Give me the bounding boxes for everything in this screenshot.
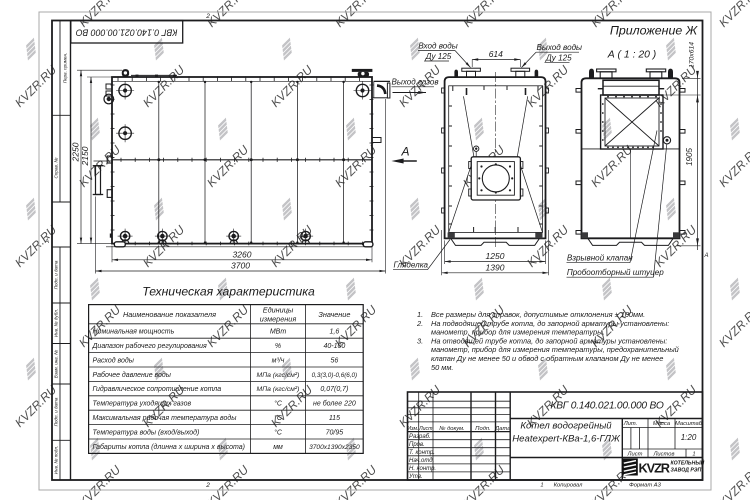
svg-text:%: % <box>275 343 281 350</box>
svg-text:3700: 3700 <box>231 261 250 271</box>
svg-text:Температура уходящих газов: Температура уходящих газов <box>93 400 192 408</box>
svg-text:Лист: Лист <box>418 426 433 432</box>
svg-text:Единицы: Единицы <box>263 306 294 315</box>
svg-text:2250: 2250 <box>71 142 81 162</box>
svg-text:Температура воды (вход/выход): Температура воды (вход/выход) <box>93 428 200 436</box>
svg-text:2.: 2. <box>416 319 423 328</box>
svg-text:На подводящей трубе котла, до: На подводящей трубе котла, до запорной а… <box>431 319 669 328</box>
svg-text:не более 220: не более 220 <box>313 400 356 408</box>
svg-text:Взрывной клапан: Взрывной клапан <box>567 254 633 263</box>
svg-text:Диапазон рабочего регулировани: Диапазон рабочего регулирования <box>92 342 208 350</box>
svg-text:Выход воды: Выход воды <box>537 43 583 52</box>
svg-text:1:20: 1:20 <box>681 433 697 442</box>
svg-text:Номинальная мощность: Номинальная мощность <box>93 329 175 336</box>
svg-text:Справ. №: Справ. № <box>54 158 59 179</box>
svg-text:Значение: Значение <box>318 310 350 319</box>
svg-text:Наименование показателя: Наименование показателя <box>123 310 216 319</box>
svg-text:Техническая характеристика: Техническая характеристика <box>142 285 315 299</box>
svg-text:МПа (кгс/см²): МПа (кгс/см²) <box>257 386 300 393</box>
svg-text:2150: 2150 <box>80 146 90 166</box>
svg-text:1: 1 <box>692 451 695 457</box>
svg-text:Выход газов: Выход газов <box>392 78 439 87</box>
svg-text:Ду 125: Ду 125 <box>545 54 572 63</box>
svg-text:На отводящей трубе котла, до з: На отводящей трубе котла, до запорной ар… <box>431 336 667 345</box>
svg-text:манометр, прибор для измерения: манометр, прибор для измерения температу… <box>431 328 605 337</box>
svg-text:Подп. и дата: Подп. и дата <box>54 260 59 289</box>
svg-text:Нач.отд.: Нач.отд. <box>409 458 434 464</box>
svg-text:70/95: 70/95 <box>326 429 344 436</box>
svg-text:115: 115 <box>329 415 340 422</box>
svg-text:Пробоотборный штуцер: Пробоотборный штуцер <box>567 268 664 277</box>
svg-text:Инв. № подл.: Инв. № подл. <box>54 446 59 475</box>
svg-text:1,6: 1,6 <box>330 329 340 336</box>
svg-text:Разраб.: Разраб. <box>409 434 431 440</box>
svg-text:3260: 3260 <box>233 249 252 259</box>
svg-text:1.: 1. <box>417 310 423 319</box>
svg-text:Пров.: Пров. <box>409 442 425 448</box>
svg-text:МВт: МВт <box>270 329 287 336</box>
svg-text:0,07(0,7): 0,07(0,7) <box>320 386 348 393</box>
svg-text:Габариты котла (длинна х ширин: Габариты котла (длинна х ширина х высота… <box>93 443 246 451</box>
svg-text:Подп.: Подп. <box>475 426 490 432</box>
svg-text:Приложение Ж: Приложение Ж <box>610 24 698 38</box>
svg-text:Формат А3: Формат А3 <box>629 483 661 489</box>
svg-text:Изм.: Изм. <box>407 426 418 432</box>
svg-text:Рабочее давление воды: Рабочее давление воды <box>93 371 172 379</box>
svg-text:2: 2 <box>205 482 210 489</box>
svg-text:А: А <box>401 145 410 159</box>
svg-text:1250: 1250 <box>486 251 505 261</box>
svg-text:Гидравлическое сопротивление к: Гидравлическое сопротивление котла <box>93 385 222 393</box>
svg-text:клапан Ду не менее 50 и обвод: клапан Ду не менее 50 и обвод с обратным… <box>431 354 663 363</box>
svg-text:манометр, прибор для измерения: манометр, прибор для измерения температу… <box>431 345 679 354</box>
svg-text:1905: 1905 <box>685 148 694 166</box>
svg-text:ЗАВОД РЭП: ЗАВОД РЭП <box>671 468 702 474</box>
svg-text:Взам. инв. №: Взам. инв. № <box>54 350 59 378</box>
svg-text:2: 2 <box>205 13 210 20</box>
svg-text:Heatexpert-КВа-1,6-ГЛЖ: Heatexpert-КВа-1,6-ГЛЖ <box>512 434 621 445</box>
svg-text:1390: 1390 <box>486 263 505 273</box>
svg-text:КВГ 0.140.021.00.000 ВО: КВГ 0.140.021.00.000 ВО <box>76 27 178 37</box>
svg-text:измерения: измерения <box>260 315 297 324</box>
svg-text:Копировал: Копировал <box>554 483 584 489</box>
svg-text:А: А <box>44 239 49 245</box>
svg-text:Все размеры для справок, допус: Все размеры для справок, допустимые откл… <box>431 310 645 319</box>
svg-text:Утв.: Утв. <box>408 474 423 480</box>
svg-text:Лит.: Лит. <box>623 421 638 427</box>
svg-text:Н. контр.: Н. контр. <box>409 466 436 472</box>
svg-text:56: 56 <box>331 357 339 364</box>
svg-text:KVZR: KVZR <box>639 461 670 476</box>
svg-text:3.: 3. <box>417 336 423 345</box>
svg-text:0,3(3,0)-0,6(6,0): 0,3(3,0)-0,6(6,0) <box>312 372 358 379</box>
svg-text:Т. контр.: Т. контр. <box>409 450 435 456</box>
svg-text:614: 614 <box>489 49 503 59</box>
svg-text:40-100: 40-100 <box>324 343 346 350</box>
svg-text:Максимальная рабочая температу: Максимальная рабочая температура воды <box>93 414 238 422</box>
svg-text:50 мм.: 50 мм. <box>431 363 453 372</box>
svg-text:3700х1390х2350: 3700х1390х2350 <box>309 444 360 451</box>
svg-text:мм: мм <box>273 444 283 451</box>
svg-text:Масса: Масса <box>653 421 671 427</box>
svg-text:Масштаб: Масштаб <box>675 421 703 427</box>
svg-text:Вход воды: Вход воды <box>418 41 457 50</box>
svg-text:А ( 1 : 20 ): А ( 1 : 20 ) <box>607 50 657 61</box>
svg-text:№ докум.: № докум. <box>439 426 465 432</box>
svg-text:МПа (кгс/см²): МПа (кгс/см²) <box>257 372 300 379</box>
svg-text:1: 1 <box>540 483 543 489</box>
svg-text:°С: °С <box>274 414 283 422</box>
svg-text:КОТЕЛЬНЫЙ: КОТЕЛЬНЫЙ <box>671 459 705 467</box>
svg-text:Котел водогрейный: Котел водогрейный <box>520 421 612 432</box>
svg-text:КВГ 0.140.021.00.000 ВО: КВГ 0.140.021.00.000 ВО <box>550 401 663 412</box>
svg-text:Дата: Дата <box>494 426 511 432</box>
svg-text:Лист: Лист <box>627 451 643 457</box>
svg-text:м³/ч: м³/ч <box>272 357 285 364</box>
svg-text:Гляделка: Гляделка <box>394 261 429 270</box>
svg-text:°С: °С <box>274 400 283 408</box>
svg-text:Расход воды: Расход воды <box>93 356 135 364</box>
svg-text:°С: °С <box>274 428 283 436</box>
svg-text:Перв. примен.: Перв. примен. <box>63 53 68 84</box>
svg-text:Подп. и дата: Подп. и дата <box>54 397 59 426</box>
svg-text:Ду 125: Ду 125 <box>425 52 452 61</box>
svg-text:Листов: Листов <box>652 451 674 457</box>
svg-text:Инв. № дубл.: Инв. № дубл. <box>54 309 59 337</box>
svg-text:А: А <box>703 253 708 259</box>
svg-text:170х614: 170х614 <box>689 42 696 68</box>
